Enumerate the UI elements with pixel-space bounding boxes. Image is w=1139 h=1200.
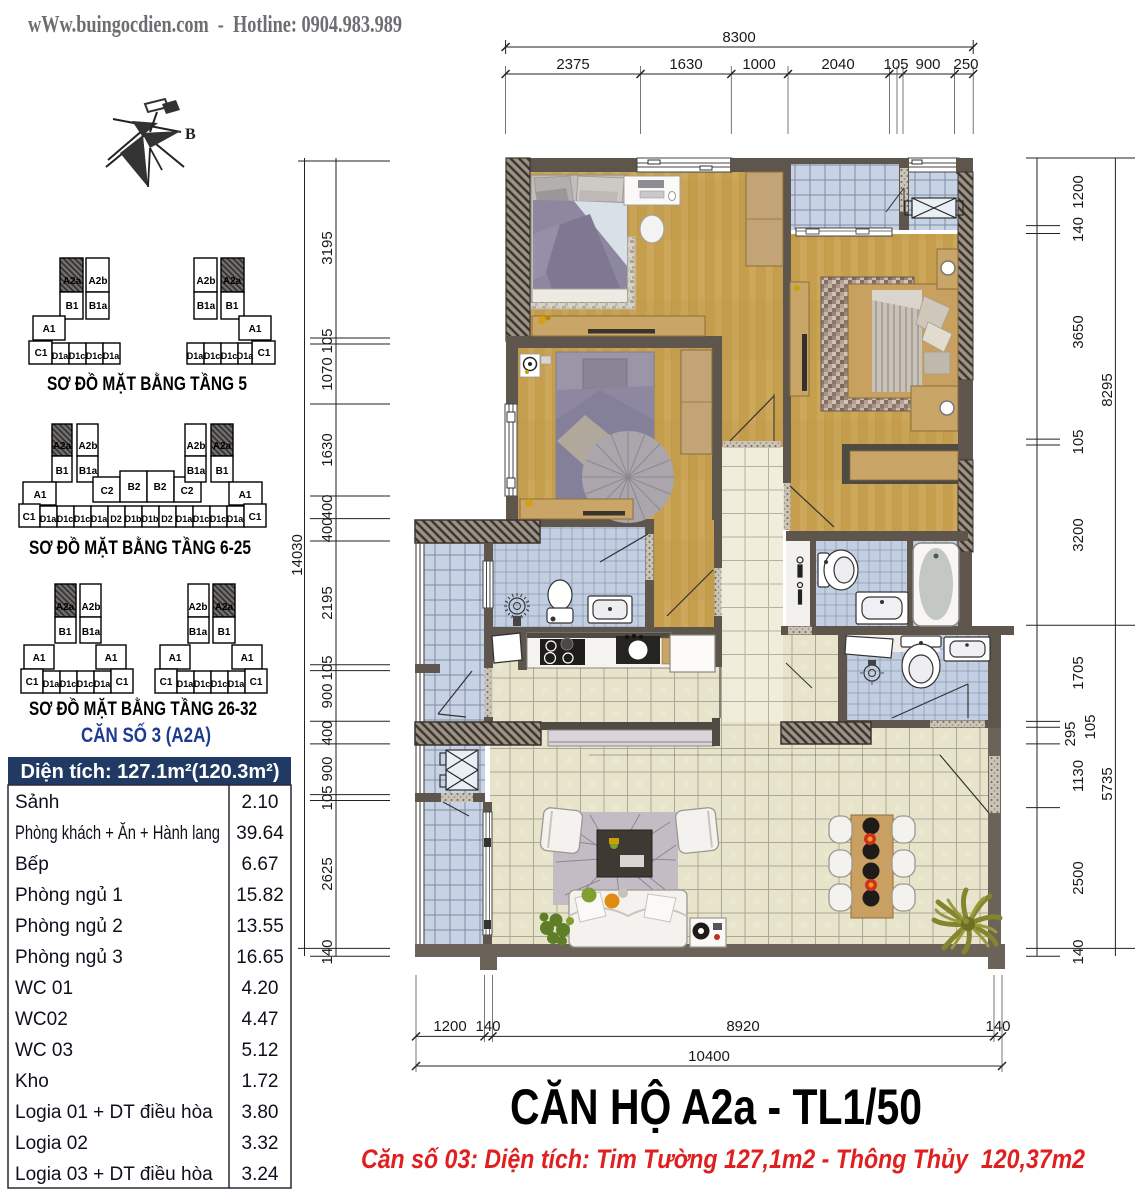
svg-text:A1: A1 xyxy=(239,490,252,501)
svg-text:B1: B1 xyxy=(218,627,231,638)
svg-text:2375: 2375 xyxy=(556,56,589,73)
svg-text:16.65: 16.65 xyxy=(236,947,284,968)
svg-text:1130: 1130 xyxy=(1070,760,1087,792)
svg-text:3.32: 3.32 xyxy=(242,1133,279,1154)
svg-text:140: 140 xyxy=(1070,217,1087,242)
svg-text:400: 400 xyxy=(319,720,336,745)
svg-text:B1: B1 xyxy=(56,466,69,477)
svg-text:105: 105 xyxy=(1082,714,1099,739)
svg-text:D1c: D1c xyxy=(204,351,221,361)
svg-text:SƠ ĐỒ MẶT BẰNG TẦNG 6-25: SƠ ĐỒ MẶT BẰNG TẦNG 6-25 xyxy=(29,537,251,559)
svg-text:6.67: 6.67 xyxy=(242,854,279,875)
svg-text:39.64: 39.64 xyxy=(236,823,284,844)
svg-text:D1c: D1c xyxy=(221,351,238,361)
svg-text:D2: D2 xyxy=(161,514,173,524)
svg-text:105: 105 xyxy=(1070,429,1087,454)
svg-text:Phòng ngủ 2: Phòng ngủ 2 xyxy=(15,916,123,937)
svg-text:SƠ ĐỒ MẶT BẰNG TẦNG 5: SƠ ĐỒ MẶT BẰNG TẦNG 5 xyxy=(47,373,247,395)
svg-text:D1a: D1a xyxy=(103,351,121,361)
svg-text:A2a: A2a xyxy=(56,602,75,613)
svg-text:C2: C2 xyxy=(181,486,194,497)
svg-text:3.24: 3.24 xyxy=(242,1164,279,1185)
svg-text:A1: A1 xyxy=(43,324,56,335)
svg-text:A1: A1 xyxy=(241,653,254,664)
svg-text:D1b: D1b xyxy=(141,514,159,524)
svg-text:8920: 8920 xyxy=(726,1018,759,1035)
svg-text:C1: C1 xyxy=(35,348,48,359)
svg-text:2040: 2040 xyxy=(821,56,854,73)
svg-text:8295: 8295 xyxy=(1099,373,1116,406)
svg-text:A2b: A2b xyxy=(79,441,98,452)
svg-text:250: 250 xyxy=(953,56,978,73)
svg-text:WC 01: WC 01 xyxy=(15,978,73,999)
svg-text:CĂN HỘ A2a - TL1/50: CĂN HỘ A2a - TL1/50 xyxy=(510,1078,922,1135)
svg-text:Logia 03 + DT điều hòa: Logia 03 + DT điều hòa xyxy=(15,1164,213,1185)
svg-text:D1a: D1a xyxy=(228,679,246,689)
svg-text:105: 105 xyxy=(319,655,336,680)
svg-text:A1: A1 xyxy=(34,490,47,501)
svg-text:C1: C1 xyxy=(160,677,173,688)
svg-text:D2: D2 xyxy=(110,514,122,524)
svg-text:C1: C1 xyxy=(116,677,129,688)
svg-text:1200: 1200 xyxy=(1070,175,1087,208)
svg-text:10400: 10400 xyxy=(688,1048,730,1065)
svg-text:2.10: 2.10 xyxy=(242,792,279,813)
svg-text:A2b: A2b xyxy=(89,276,108,287)
svg-text:2500: 2500 xyxy=(1070,861,1087,894)
svg-text:D1c: D1c xyxy=(74,514,91,524)
svg-text:C1: C1 xyxy=(23,512,36,523)
svg-text:B1: B1 xyxy=(216,466,229,477)
svg-text:B1: B1 xyxy=(66,301,79,312)
svg-text:Logia 02: Logia 02 xyxy=(15,1133,88,1154)
svg-text:D1a: D1a xyxy=(177,679,195,689)
svg-text:105: 105 xyxy=(319,785,336,810)
svg-text:105: 105 xyxy=(883,56,908,73)
svg-text:D1a: D1a xyxy=(94,679,112,689)
svg-text:D1c: D1c xyxy=(211,679,228,689)
svg-text:3650: 3650 xyxy=(1070,315,1087,348)
svg-text:400: 400 xyxy=(319,517,336,542)
svg-text:D1c: D1c xyxy=(57,514,74,524)
svg-text:WC02: WC02 xyxy=(15,1009,68,1030)
svg-text:A2a: A2a xyxy=(213,441,232,452)
svg-text:A2b: A2b xyxy=(197,276,216,287)
svg-text:D1c: D1c xyxy=(69,351,86,361)
svg-text:CĂN SỐ 3 (A2A): CĂN SỐ 3 (A2A) xyxy=(81,723,211,747)
svg-text:140: 140 xyxy=(1070,939,1087,964)
svg-text:D1c: D1c xyxy=(210,514,227,524)
svg-text:B1: B1 xyxy=(226,301,239,312)
svg-text:B2: B2 xyxy=(154,482,167,493)
svg-text:Bếp: Bếp xyxy=(15,854,49,875)
svg-text:B1a: B1a xyxy=(187,466,206,477)
svg-text:D1a: D1a xyxy=(187,351,205,361)
svg-text:Căn số 03: Diện tích: Tim Tườn: Căn số 03: Diện tích: Tim Tường 127,1m2 … xyxy=(361,1144,1085,1174)
svg-text:D1a: D1a xyxy=(237,351,255,361)
svg-text:Kho: Kho xyxy=(15,1071,49,1092)
svg-text:295: 295 xyxy=(1062,721,1079,746)
svg-text:140: 140 xyxy=(319,939,336,964)
svg-text:D1a: D1a xyxy=(91,514,109,524)
svg-text:5735: 5735 xyxy=(1099,767,1116,800)
svg-text:140: 140 xyxy=(475,1018,500,1035)
svg-text:900: 900 xyxy=(915,56,940,73)
svg-text:A1: A1 xyxy=(33,653,46,664)
svg-text:D1c: D1c xyxy=(60,679,77,689)
svg-text:B2: B2 xyxy=(128,482,141,493)
svg-text:B1a: B1a xyxy=(82,627,101,638)
svg-text:2625: 2625 xyxy=(319,857,336,890)
svg-text:A1: A1 xyxy=(105,653,118,664)
svg-text:1630: 1630 xyxy=(669,56,702,73)
svg-text:1630: 1630 xyxy=(319,433,336,466)
svg-text:A2a: A2a xyxy=(63,276,82,287)
svg-text:Sảnh: Sảnh xyxy=(15,792,59,813)
svg-text:3.80: 3.80 xyxy=(242,1102,279,1123)
svg-text:2195: 2195 xyxy=(319,586,336,619)
svg-text:4.20: 4.20 xyxy=(242,978,279,999)
svg-text:1705: 1705 xyxy=(1070,656,1087,689)
svg-text:400: 400 xyxy=(319,494,336,519)
svg-text:B1a: B1a xyxy=(197,301,216,312)
svg-text:105: 105 xyxy=(319,328,336,353)
svg-text:B1a: B1a xyxy=(89,301,108,312)
svg-text:A1: A1 xyxy=(249,324,262,335)
svg-text:140: 140 xyxy=(985,1018,1010,1035)
svg-text:Phòng khách + Ăn + Hành lang: Phòng khách + Ăn + Hành lang xyxy=(15,823,220,844)
svg-text:15.82: 15.82 xyxy=(236,885,284,906)
svg-text:900: 900 xyxy=(319,683,336,708)
svg-text:A2b: A2b xyxy=(189,602,208,613)
svg-text:Diện tích: 127.1m²(120.3m²): Diện tích: 127.1m²(120.3m²) xyxy=(21,761,280,783)
svg-text:D1c: D1c xyxy=(193,514,210,524)
svg-text:D1a: D1a xyxy=(43,679,61,689)
svg-text:C1: C1 xyxy=(258,348,271,359)
svg-text:13.55: 13.55 xyxy=(236,916,284,937)
svg-text:D1c: D1c xyxy=(77,679,94,689)
svg-text:Phòng ngủ 3: Phòng ngủ 3 xyxy=(15,947,123,968)
svg-text:Logia 01 + DT điều hòa: Logia 01 + DT điều hòa xyxy=(15,1102,213,1123)
svg-text:D1b: D1b xyxy=(124,514,142,524)
svg-text:1070: 1070 xyxy=(319,357,336,390)
svg-text:Phòng ngủ 1: Phòng ngủ 1 xyxy=(15,885,123,906)
svg-text:D1a: D1a xyxy=(227,514,245,524)
svg-text:B1: B1 xyxy=(59,627,72,638)
svg-text:3200: 3200 xyxy=(1070,518,1087,551)
svg-text:SƠ ĐỒ MẶT BẰNG TẦNG 26-32: SƠ ĐỒ MẶT BẰNG TẦNG 26-32 xyxy=(29,698,257,720)
svg-text:A1: A1 xyxy=(169,653,182,664)
svg-text:14030: 14030 xyxy=(289,534,306,576)
svg-text:1000: 1000 xyxy=(742,56,775,73)
svg-text:A2a: A2a xyxy=(215,602,234,613)
svg-text:A2b: A2b xyxy=(187,441,206,452)
svg-text:C1: C1 xyxy=(26,677,39,688)
svg-text:3195: 3195 xyxy=(319,231,336,264)
svg-text:A2b: A2b xyxy=(82,602,101,613)
svg-text:B1a: B1a xyxy=(189,627,208,638)
svg-text:C1: C1 xyxy=(249,512,262,523)
svg-text:B: B xyxy=(185,126,196,143)
svg-text:1.72: 1.72 xyxy=(242,1071,279,1092)
svg-text:WC 03: WC 03 xyxy=(15,1040,73,1061)
svg-text:C1: C1 xyxy=(250,677,263,688)
svg-text:4.47: 4.47 xyxy=(242,1009,279,1030)
svg-text:D1a: D1a xyxy=(176,514,194,524)
svg-text:D1c: D1c xyxy=(86,351,103,361)
svg-text:A2a: A2a xyxy=(223,276,242,287)
svg-text:D1a: D1a xyxy=(40,514,58,524)
svg-text:D1c: D1c xyxy=(194,679,211,689)
svg-text:8300: 8300 xyxy=(722,29,755,46)
svg-text:wWw.buingocdien.com - Hotlin: wWw.buingocdien.com - Hotline: 0904.983.… xyxy=(28,12,402,38)
svg-text:C2: C2 xyxy=(101,486,114,497)
svg-text:5.12: 5.12 xyxy=(242,1040,279,1061)
svg-text:900: 900 xyxy=(319,756,336,781)
svg-text:1200: 1200 xyxy=(433,1018,466,1035)
svg-text:D1a: D1a xyxy=(52,351,70,361)
svg-text:B1a: B1a xyxy=(79,466,98,477)
svg-text:A2a: A2a xyxy=(53,441,72,452)
